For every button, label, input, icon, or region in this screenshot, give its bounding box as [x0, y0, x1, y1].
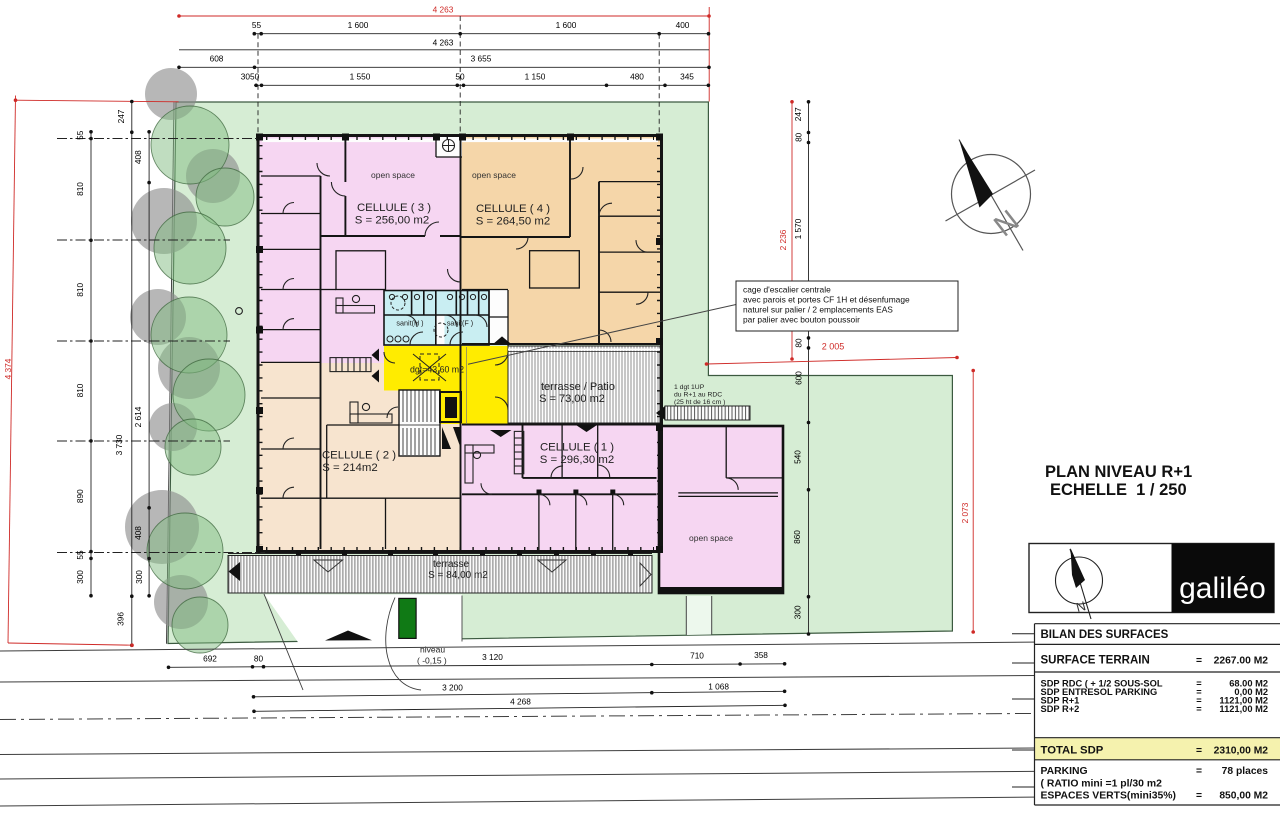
- svg-text:sanit(F ): sanit(F ): [447, 319, 473, 328]
- svg-text:niveau: niveau: [420, 645, 445, 655]
- svg-text:=: =: [1196, 746, 1202, 757]
- svg-text:2 073: 2 073: [960, 502, 970, 523]
- svg-text:50: 50: [455, 72, 465, 82]
- svg-text:78 places: 78 places: [1222, 766, 1269, 777]
- svg-text:open space: open space: [472, 170, 516, 180]
- svg-text:80: 80: [254, 654, 264, 664]
- svg-text:480: 480: [630, 72, 644, 82]
- svg-text:cage d'escalier centrale: cage d'escalier centrale: [743, 285, 831, 295]
- svg-text:247: 247: [116, 109, 126, 123]
- svg-text:ECHELLE 1 / 250: ECHELLE 1 / 250: [1050, 481, 1187, 499]
- svg-text:710: 710: [690, 651, 704, 661]
- svg-text:345: 345: [680, 72, 694, 82]
- svg-text:2 614: 2 614: [133, 406, 143, 427]
- svg-text:=: =: [1196, 704, 1202, 714]
- svg-text:CELLULE ( 4 ): CELLULE ( 4 ): [476, 203, 550, 215]
- svg-text:2 236: 2 236: [778, 229, 788, 250]
- svg-text:600: 600: [794, 371, 804, 385]
- svg-text:par palier avec bouton poussoi: par palier avec bouton poussoir: [743, 315, 860, 325]
- svg-text:galiléo: galiléo: [1179, 572, 1266, 605]
- svg-text:dgt=43,60 m2: dgt=43,60 m2: [410, 365, 464, 375]
- svg-text:810: 810: [75, 182, 85, 196]
- svg-text:PARKING: PARKING: [1041, 766, 1088, 777]
- svg-text:S = 214m2: S = 214m2: [322, 462, 377, 474]
- svg-text:du R+1 au RDC: du R+1 au RDC: [674, 392, 722, 399]
- svg-text:1 dgt 1UP: 1 dgt 1UP: [674, 384, 705, 391]
- svg-text:540: 540: [793, 450, 803, 464]
- svg-text:3 120: 3 120: [482, 652, 503, 662]
- svg-text:408: 408: [133, 526, 143, 540]
- svg-text:4 263: 4 263: [433, 5, 454, 15]
- svg-text:=: =: [1196, 791, 1202, 802]
- svg-text:80: 80: [794, 132, 804, 142]
- svg-text:PLAN NIVEAU R+1: PLAN NIVEAU R+1: [1045, 463, 1192, 481]
- svg-text:608: 608: [210, 54, 224, 64]
- svg-text:1 068: 1 068: [708, 682, 729, 692]
- svg-text:( RATIO mini =1 pl/30 m2: ( RATIO mini =1 pl/30 m2: [1041, 779, 1163, 790]
- svg-text:247: 247: [793, 107, 803, 121]
- svg-text:4 374: 4 374: [3, 358, 13, 379]
- svg-text:sanit(H ): sanit(H ): [396, 319, 423, 328]
- svg-text:S = 296,30 m2: S = 296,30 m2: [540, 454, 614, 466]
- svg-text:TOTAL SDP: TOTAL SDP: [1041, 745, 1104, 757]
- svg-text:open space: open space: [371, 170, 415, 180]
- svg-text:avec parois et portes CF 1H: avec parois et portes CF 1H et désenfuma…: [743, 295, 910, 305]
- svg-text:S = 264,50 m2: S = 264,50 m2: [476, 216, 550, 228]
- svg-text:CELLULE ( 2 ): CELLULE ( 2 ): [322, 450, 396, 462]
- svg-text:692: 692: [203, 654, 217, 664]
- svg-text:S = 73,00 m2: S = 73,00 m2: [539, 393, 605, 405]
- svg-text:1121,00 M2: 1121,00 M2: [1219, 704, 1268, 714]
- svg-text:S = 256,00 m2: S = 256,00 m2: [355, 215, 429, 227]
- svg-text:3 730: 3 730: [114, 434, 124, 455]
- svg-text:400: 400: [676, 20, 690, 30]
- svg-text:terrasse / Patio: terrasse / Patio: [541, 381, 615, 393]
- svg-text:naturel sur palier / 2 emplac: naturel sur palier / 2 emplacements EAS: [743, 305, 893, 315]
- svg-text:850,00 M2: 850,00 M2: [1219, 791, 1268, 802]
- svg-text:SDP R+2: SDP R+2: [1041, 704, 1080, 714]
- svg-text:3050: 3050: [241, 72, 260, 82]
- svg-text:(25 ht de 16 cm ): (25 ht de 16 cm ): [674, 399, 725, 406]
- svg-text:N: N: [988, 204, 1025, 243]
- svg-text:1 600: 1 600: [556, 20, 577, 30]
- svg-text:terrasse: terrasse: [433, 559, 470, 570]
- svg-text:=: =: [1196, 656, 1202, 667]
- svg-text:300: 300: [134, 570, 144, 584]
- svg-text:80: 80: [794, 338, 804, 348]
- svg-text:CELLULE ( 3 ): CELLULE ( 3 ): [357, 202, 431, 214]
- svg-text:1 150: 1 150: [525, 72, 546, 82]
- svg-text:2 005: 2 005: [822, 342, 845, 352]
- svg-text:open space: open space: [689, 533, 733, 543]
- svg-text:2310,00 M2: 2310,00 M2: [1214, 746, 1269, 757]
- svg-text:3 200: 3 200: [442, 683, 463, 693]
- svg-text:810: 810: [75, 282, 85, 296]
- svg-text:CELLULE ( 1 ): CELLULE ( 1 ): [540, 442, 614, 454]
- svg-text:55: 55: [75, 130, 85, 140]
- svg-text:BILAN DES SURFACES: BILAN DES SURFACES: [1041, 629, 1169, 641]
- svg-text:810: 810: [75, 383, 85, 397]
- svg-text:ESPACES VERTS(mini35%): ESPACES VERTS(mini35%): [1041, 791, 1177, 802]
- svg-text:1 600: 1 600: [348, 20, 369, 30]
- svg-text:396: 396: [116, 612, 126, 626]
- svg-text:3 655: 3 655: [471, 54, 492, 64]
- svg-text:S = 84,00 m2: S = 84,00 m2: [428, 570, 488, 581]
- svg-text:SURFACE TERRAIN: SURFACE TERRAIN: [1041, 655, 1150, 667]
- svg-text:300: 300: [75, 570, 85, 584]
- svg-text:300: 300: [793, 605, 803, 619]
- svg-text:55: 55: [75, 550, 85, 560]
- svg-text:4 268: 4 268: [510, 697, 531, 707]
- svg-text:408: 408: [133, 150, 143, 164]
- svg-text:4 263: 4 263: [433, 38, 454, 48]
- svg-text:2267.00 M2: 2267.00 M2: [1214, 656, 1269, 667]
- svg-text:55: 55: [252, 20, 262, 30]
- svg-text:=: =: [1196, 766, 1202, 777]
- svg-text:860: 860: [792, 530, 802, 544]
- svg-text:890: 890: [75, 489, 85, 503]
- svg-text:( -0,15 ): ( -0,15 ): [417, 656, 447, 666]
- svg-text:1 570: 1 570: [793, 218, 803, 239]
- svg-text:358: 358: [754, 650, 768, 660]
- svg-text:1 550: 1 550: [350, 72, 371, 82]
